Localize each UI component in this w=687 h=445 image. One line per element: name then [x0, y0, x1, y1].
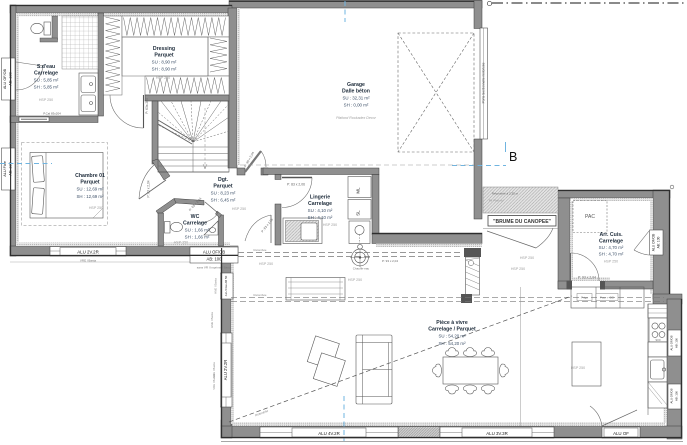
svg-text:Carrelage: Carrelage: [183, 221, 207, 227]
svg-text:Garage: Garage: [347, 82, 365, 88]
svg-text:Chambre 01: Chambre 01: [75, 173, 105, 179]
svg-text:Plafond Rockadex Decor: Plafond Rockadex Decor: [336, 116, 377, 120]
svg-text:Retombée à 2,35 m: Retombée à 2,35 m: [492, 192, 519, 196]
svg-text:PAC: PAC: [585, 214, 595, 220]
svg-text:P: 93 x 2,04: P: 93 x 2,04: [578, 276, 596, 280]
svg-text:"BRUME DU CANOPEE": "BRUME DU CANOPEE": [493, 219, 551, 225]
svg-text:HSP 250: HSP 250: [259, 262, 273, 266]
svg-text:Porte Sectionnelle motorisée: Porte Sectionnelle motorisée: [482, 62, 486, 103]
svg-text:Parquet: Parquet: [154, 53, 174, 59]
svg-text:AB: 100: AB: 100: [675, 338, 679, 348]
svg-text:SH : 6,45 m²: SH : 6,45 m²: [211, 198, 236, 203]
svg-text:HSP 250: HSP 250: [232, 207, 246, 211]
svg-text:sans VR l Imprimé l Basta: sans VR l Imprimé l Basta: [197, 266, 232, 270]
svg-text:Carrelage: Carrelage: [308, 201, 332, 207]
svg-text:HNE l Basta: HNE l Basta: [210, 312, 214, 328]
svg-text:ALU 3V.3R: ALU 3V.3R: [486, 431, 508, 436]
svg-text:HSP 250: HSP 250: [39, 98, 53, 102]
svg-text:HSP 250: HSP 250: [156, 76, 170, 80]
svg-text:Carrelage / Parquet: Carrelage / Parquet: [428, 327, 476, 333]
svg-text:SH : 4,70 m²: SH : 4,70 m²: [599, 252, 624, 257]
svg-text:Retombée: Retombée: [254, 293, 267, 297]
svg-text:P.Cal 83x204: P.Cal 83x204: [43, 112, 61, 116]
svg-text:Pièce à vivre: Pièce à vivre: [436, 320, 468, 326]
svg-text:Retombée: Retombée: [254, 248, 267, 252]
svg-text:SH : 4,10 m²: SH : 4,10 m²: [308, 215, 333, 220]
svg-text:P: 63 x 2,04: P: 63 x 2,04: [147, 180, 151, 197]
svg-text:SL: SL: [356, 210, 361, 216]
svg-text:SU : 12,69 m²: SU : 12,69 m²: [76, 187, 104, 192]
svg-text:SH : 54,20 m²: SH : 54,20 m²: [438, 341, 466, 346]
svg-text:SU : 32,31 m²: SU : 32,31 m²: [342, 96, 370, 101]
svg-text:P: 63a 204: P: 63a 204: [145, 98, 149, 114]
svg-text:Arr. Cuis.: Arr. Cuis.: [599, 232, 623, 238]
svg-text:900: 900: [655, 338, 660, 342]
svg-text:Pz Plafond: Pz Plafond: [489, 199, 504, 203]
svg-text:ALU OF: ALU OF: [613, 431, 629, 436]
svg-text:Parquet: Parquet: [213, 184, 233, 190]
svg-text:P: 83 x 2,06: P: 83 x 2,06: [287, 183, 305, 187]
svg-text:HSP 250: HSP 250: [520, 256, 534, 260]
svg-text:SU : 1,66 m²: SU : 1,66 m²: [185, 228, 210, 233]
svg-text:SU : 8,23 m²: SU : 8,23 m²: [211, 191, 236, 196]
svg-text:Carrelage: Carrelage: [34, 71, 58, 77]
svg-text:ALU 2V.2R: ALU 2V.2R: [77, 250, 99, 255]
svg-text:ALU 2V.2R: ALU 2V.2R: [223, 360, 228, 381]
svg-text:VRE l Basta: VRE l Basta: [80, 259, 97, 263]
svg-text:HSP 250: HSP 250: [174, 241, 188, 245]
svg-text:Dressing: Dressing: [153, 46, 175, 52]
svg-text:HSP 250: HSP 250: [323, 223, 337, 227]
svg-text:HSP 250: HSP 250: [348, 278, 362, 282]
svg-text:S.d'eau: S.d'eau: [37, 64, 55, 70]
svg-text:AB: 100: AB: 100: [207, 257, 223, 262]
svg-text:WC: WC: [191, 214, 200, 220]
svg-text:SU : 5,85 m²: SU : 5,85 m²: [34, 78, 59, 83]
svg-text:SH : 5,85 m²: SH : 5,85 m²: [34, 85, 59, 90]
svg-text:HSP 250: HSP 250: [89, 206, 103, 210]
svg-text:HSP 250: HSP 250: [571, 366, 585, 370]
svg-text:ALU OF/OB: ALU OF/OB: [3, 68, 7, 89]
svg-text:SU : 54,20 m²: SU : 54,20 m²: [438, 334, 466, 339]
svg-text:AB: 100: AB: 100: [675, 391, 679, 401]
svg-text:SH : 8,90 m²: SH : 8,90 m²: [152, 67, 177, 72]
svg-text:HNE l Basta: HNE l Basta: [214, 278, 218, 294]
svg-text:ALU OF/OB: ALU OF/OB: [670, 335, 674, 350]
svg-text:P: 93 x 2,04: P: 93 x 2,04: [382, 259, 398, 263]
svg-text:SH : 1,66 m²: SH : 1,66 m²: [185, 235, 210, 240]
svg-text:sans VR l Basta: sans VR l Basta: [663, 233, 667, 252]
svg-text:SU : 4,10 m²: SU : 4,10 m²: [308, 208, 333, 213]
svg-text:Carrelage: Carrelage: [599, 239, 623, 245]
svg-text:AB: 100: AB: 100: [657, 236, 661, 248]
svg-text:SH : 12,69 m²: SH : 12,69 m²: [76, 194, 104, 199]
svg-text:Chauffe-eau: Chauffe-eau: [353, 267, 370, 271]
svg-text:ALU OF/OB: ALU OF/OB: [670, 388, 674, 403]
svg-text:SU : 8,90 m²: SU : 8,90 m²: [152, 60, 177, 65]
svg-text:ML: ML: [356, 187, 361, 194]
svg-text:Parquet: Parquet: [80, 180, 100, 186]
svg-text:B: B: [509, 150, 517, 164]
svg-text:Dalle béton: Dalle béton: [342, 89, 370, 95]
svg-text:VRE l Basta: VRE l Basta: [212, 374, 216, 390]
svg-text:HSP 250: HSP 250: [604, 260, 618, 264]
svg-text:SH : 0,00 m²: SH : 0,00 m²: [344, 103, 369, 108]
svg-text:HSP 250: HSP 250: [511, 267, 525, 271]
svg-text:ALU Fixe AB 50: ALU Fixe AB 50: [224, 275, 228, 296]
svg-text:Lingerie: Lingerie: [310, 195, 330, 201]
svg-text:SU : 4,70 m²: SU : 4,70 m²: [599, 245, 624, 250]
svg-text:ALU OF/OB: ALU OF/OB: [652, 233, 656, 251]
svg-text:ALU 4V.2R: ALU 4V.2R: [318, 431, 340, 436]
svg-text:Dgt.: Dgt.: [218, 177, 229, 183]
